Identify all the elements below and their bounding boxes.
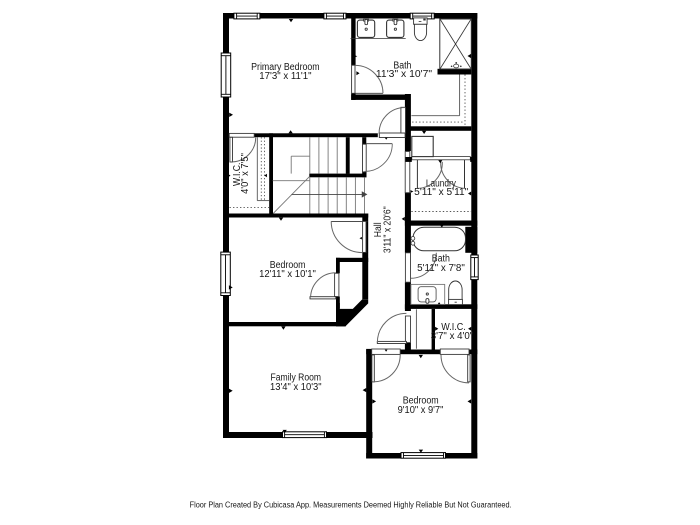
svg-text:3'11" x 20'6": 3'11" x 20'6" xyxy=(383,206,394,253)
svg-text:11'3" x 10'7": 11'3" x 10'7" xyxy=(376,69,433,80)
svg-text:4'0" x 7'5": 4'0" x 7'5" xyxy=(240,153,251,194)
svg-text:17'3" x 11'1": 17'3" x 11'1" xyxy=(259,71,312,82)
svg-text:5'11" x 5'11": 5'11" x 5'11" xyxy=(414,187,468,198)
svg-text:5'11" x 7'8": 5'11" x 7'8" xyxy=(417,263,465,274)
svg-text:Floor Plan Created By Cubicasa: Floor Plan Created By Cubicasa App. Meas… xyxy=(190,501,512,510)
svg-text:12'11" x 10'1": 12'11" x 10'1" xyxy=(259,269,316,280)
svg-text:13'4" x 10'3": 13'4" x 10'3" xyxy=(270,382,322,393)
svg-text:3'7" x 4'0": 3'7" x 4'0" xyxy=(431,331,474,342)
svg-text:9'10" x 9'7": 9'10" x 9'7" xyxy=(398,405,444,416)
